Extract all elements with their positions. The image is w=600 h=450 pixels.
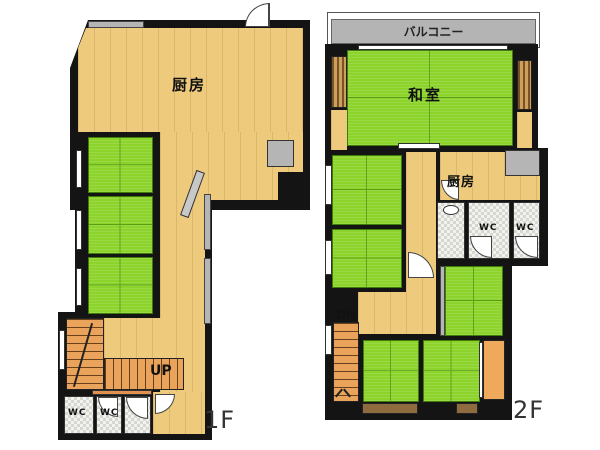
floorplan-canvas: 厨房 UP WC WC 1F バルコニー — [0, 0, 600, 450]
wc1-label-1f: WC — [68, 409, 87, 418]
alcove-2f-right — [517, 112, 532, 148]
step-strip-1f — [92, 390, 152, 395]
stairs-1f-vertical-flight — [66, 318, 104, 390]
tatami-room-1f-2 — [88, 196, 153, 254]
window-1f-right-2 — [204, 258, 211, 324]
window-1f-top — [88, 21, 144, 28]
window-2f-left-2 — [325, 240, 332, 275]
equipment-box-2f — [505, 150, 540, 176]
wc2-label-2f: WC — [516, 224, 535, 233]
sliding-door-2f-washitsu — [398, 143, 440, 149]
tatami-room-2f-d — [423, 340, 480, 402]
equipment-box-1f — [267, 140, 294, 167]
hall-floor-2f — [358, 292, 436, 334]
balcony-2f: バルコニー — [331, 19, 536, 44]
window-2f-balcony-side — [358, 45, 508, 50]
kitchen-label-1f: 厨房 — [172, 78, 206, 93]
closet-2f-bottom-1 — [362, 403, 418, 414]
tatami-room-1f-3 — [88, 257, 153, 314]
dn-label-2f: DN — [336, 309, 356, 321]
wc2-label-1f: WC — [100, 409, 119, 418]
closet-2f-right — [517, 60, 532, 110]
tatami-room-2f-b — [332, 229, 402, 288]
kitchen-label-2f: 厨房 — [447, 176, 475, 189]
up-label-1f: UP — [150, 364, 172, 378]
entrance-door-arc-1f — [245, 3, 270, 27]
partition-2f-d-engawa — [479, 342, 483, 398]
closet-2f-left — [331, 56, 347, 108]
sliding-partition-2f-e — [440, 266, 445, 336]
stairs-1f-horizontal-flight — [104, 358, 184, 390]
window-1f-left-3 — [76, 268, 82, 306]
alcove-2f-left — [331, 110, 347, 150]
engawa-strip-2f — [483, 340, 505, 400]
window-1f-right-1 — [204, 194, 211, 250]
window-1f-left-stairs — [59, 330, 65, 370]
wc1-label-2f: WC — [479, 224, 498, 233]
floor2-label: 2F — [513, 398, 544, 422]
tatami-room-2f-c — [363, 340, 419, 402]
washitsu-label-2f: 和室 — [408, 88, 442, 103]
closet-2f-bottom-2 — [456, 403, 478, 414]
balcony-label-2f: バルコニー — [404, 23, 464, 40]
sink-2f — [443, 205, 459, 215]
tatami-room-2f-e — [445, 266, 503, 336]
window-1f-left-1 — [76, 150, 82, 188]
kitchen-floor-1f-extension2 — [160, 172, 278, 200]
floor1-label: 1F — [204, 408, 235, 432]
window-2f-left-1 — [325, 165, 332, 205]
window-1f-left-2 — [76, 210, 82, 250]
window-2f-left-stairs — [325, 325, 332, 355]
stair-landing-1f — [104, 318, 162, 358]
tatami-room-2f-a — [332, 155, 402, 225]
tatami-room-1f-1 — [88, 137, 153, 193]
